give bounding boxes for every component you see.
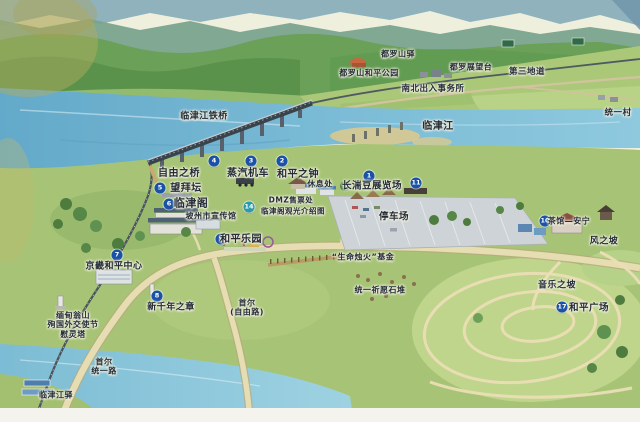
imjingang-station-label: 临津江驿 bbox=[39, 390, 73, 399]
marker-8-new-millennium: 8 bbox=[152, 291, 163, 302]
illustrated-tourist-map: 12345678910111417都罗山驿都罗山和平公园都罗展望台第三地道南北出… bbox=[0, 0, 640, 422]
imjingang-rail-bridge-label: 临津江铁桥 bbox=[180, 112, 228, 123]
freedom-bridge-label: 自由之桥 bbox=[158, 168, 200, 180]
marker-3-steam-locomotive: 3 bbox=[246, 156, 257, 167]
third-tunnel-label: 第三地道 bbox=[509, 67, 545, 77]
dorasan-station-label: 都罗山驿 bbox=[381, 49, 415, 58]
marker-14-dmz-ticket: 14 bbox=[244, 202, 255, 213]
mangbaedan-label: 望拜坛 bbox=[170, 183, 202, 195]
imjingak-tour-map-label: 临津阁观光介绍图 bbox=[261, 208, 325, 217]
marker-4-freedom-bridge: 4 bbox=[209, 156, 220, 167]
imjingak-pavilion-label: 临津阁 bbox=[174, 198, 209, 211]
tongil-village-label: 统一村 bbox=[604, 108, 631, 118]
teahouse-annyeong-label: 茶馆—安宁 bbox=[548, 216, 591, 225]
marker-7-gyeonggi-peace-center: 7 bbox=[112, 250, 123, 261]
parking-lot-label: 停车场 bbox=[379, 211, 409, 222]
peace-land-label: 和平乐园 bbox=[220, 234, 262, 246]
marker-2-peace-bell: 2 bbox=[277, 156, 288, 167]
peace-plaza-label: 和平广场 bbox=[569, 302, 609, 313]
dmz-ticket-office-label: DMZ售票处 bbox=[269, 197, 314, 206]
paju-promotion-hall-label: 坡州市宣传馆 bbox=[186, 211, 237, 220]
seoul-tongil-road-label: 首尔统一路 bbox=[91, 358, 117, 377]
hill-of-wind-label: 风之坡 bbox=[590, 237, 619, 248]
imjin-river-label: 临津江 bbox=[422, 121, 454, 133]
marker-17-peace-plaza: 17 bbox=[557, 302, 568, 313]
hill-of-music-label: 音乐之坡 bbox=[538, 281, 576, 292]
marker-5-mangbaedan: 5 bbox=[155, 183, 166, 194]
inter-korean-transit-office-label: 南北出入事务所 bbox=[401, 84, 464, 94]
rest-area-label: 休息处 bbox=[307, 179, 333, 188]
gyeonggi-peace-center-label: 京畿和平中心 bbox=[85, 262, 142, 273]
label-layer: 12345678910111417都罗山驿都罗山和平公园都罗展望台第三地道南北出… bbox=[0, 0, 640, 422]
jangdan-bean-expo-label: 长湍豆展览场 bbox=[342, 180, 402, 191]
new-millennium-monument-label: 新千年之章 bbox=[147, 303, 195, 314]
life-candle-fund-label: “生命烛火”基金 bbox=[332, 252, 395, 261]
unification-stone-cairns-label: 统一祈愿石堆 bbox=[355, 285, 406, 294]
dorasan-peace-park-label: 都罗山和平公园 bbox=[339, 68, 399, 77]
seoul-freedom-road-label: 首尔(自由路) bbox=[230, 299, 264, 318]
marker-11-parking-area: 11 bbox=[411, 178, 422, 189]
dora-observatory-label: 都罗展望台 bbox=[450, 62, 493, 71]
steam-locomotive-label: 蒸汽机车 bbox=[227, 168, 269, 180]
aungsan-martyrs-memorial-label: 缅甸翁山殉国外交使节慰灵塔 bbox=[48, 311, 99, 339]
